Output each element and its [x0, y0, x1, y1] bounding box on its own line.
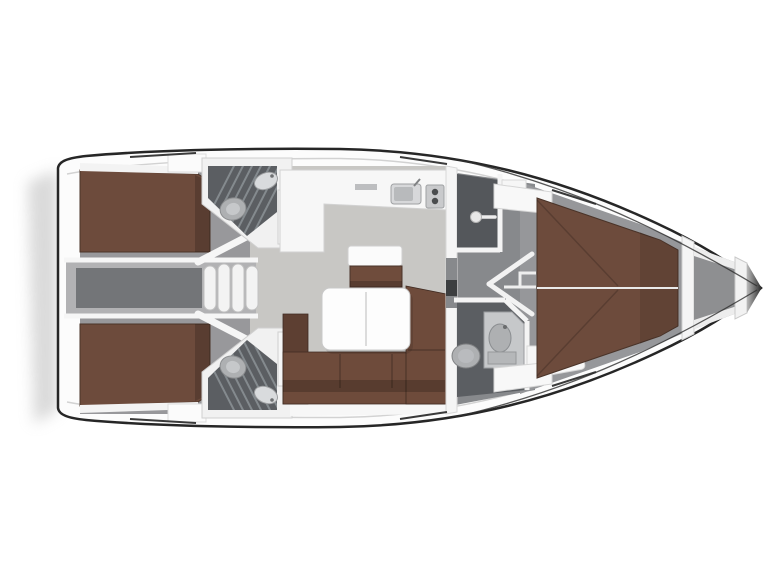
burner-icon: [432, 198, 438, 204]
faucet-icon: [270, 398, 274, 402]
wall-panel: [446, 280, 457, 296]
stern-locker: [168, 404, 206, 422]
sofa-front-shade: [283, 380, 445, 392]
step: [232, 264, 244, 312]
shower-head-icon: [471, 212, 482, 223]
bench-seat-top: [348, 246, 402, 266]
bow-bulkhead: [682, 236, 694, 340]
shower-floor: [457, 174, 498, 248]
floor-plan-canvas: [0, 0, 768, 576]
galley-accessory: [355, 184, 377, 190]
step: [218, 264, 230, 312]
aft-port-berth: [80, 154, 210, 252]
bow-crossbeam: [735, 257, 747, 319]
engine-hatch-inner: [76, 268, 202, 308]
step: [204, 266, 216, 310]
stern-locker: [168, 154, 206, 172]
faucet-icon: [503, 325, 507, 329]
faucet-icon: [270, 174, 274, 178]
bow-section: [682, 236, 761, 340]
galley-stove: [426, 185, 444, 208]
double-berth: [80, 170, 210, 252]
hull-shadow: [28, 170, 58, 424]
burner-icon: [432, 189, 438, 195]
sink-basin: [394, 187, 413, 201]
bench-seat-shade: [350, 281, 402, 287]
yacht-floor-plan: [0, 0, 768, 576]
bow-tip: [747, 263, 761, 313]
step: [246, 266, 258, 310]
sink-icon: [489, 324, 511, 352]
toilet-bowl: [458, 349, 474, 363]
double-berth: [80, 324, 210, 406]
aft-starboard-berth: [80, 324, 210, 422]
vanity-drawer: [488, 352, 516, 364]
